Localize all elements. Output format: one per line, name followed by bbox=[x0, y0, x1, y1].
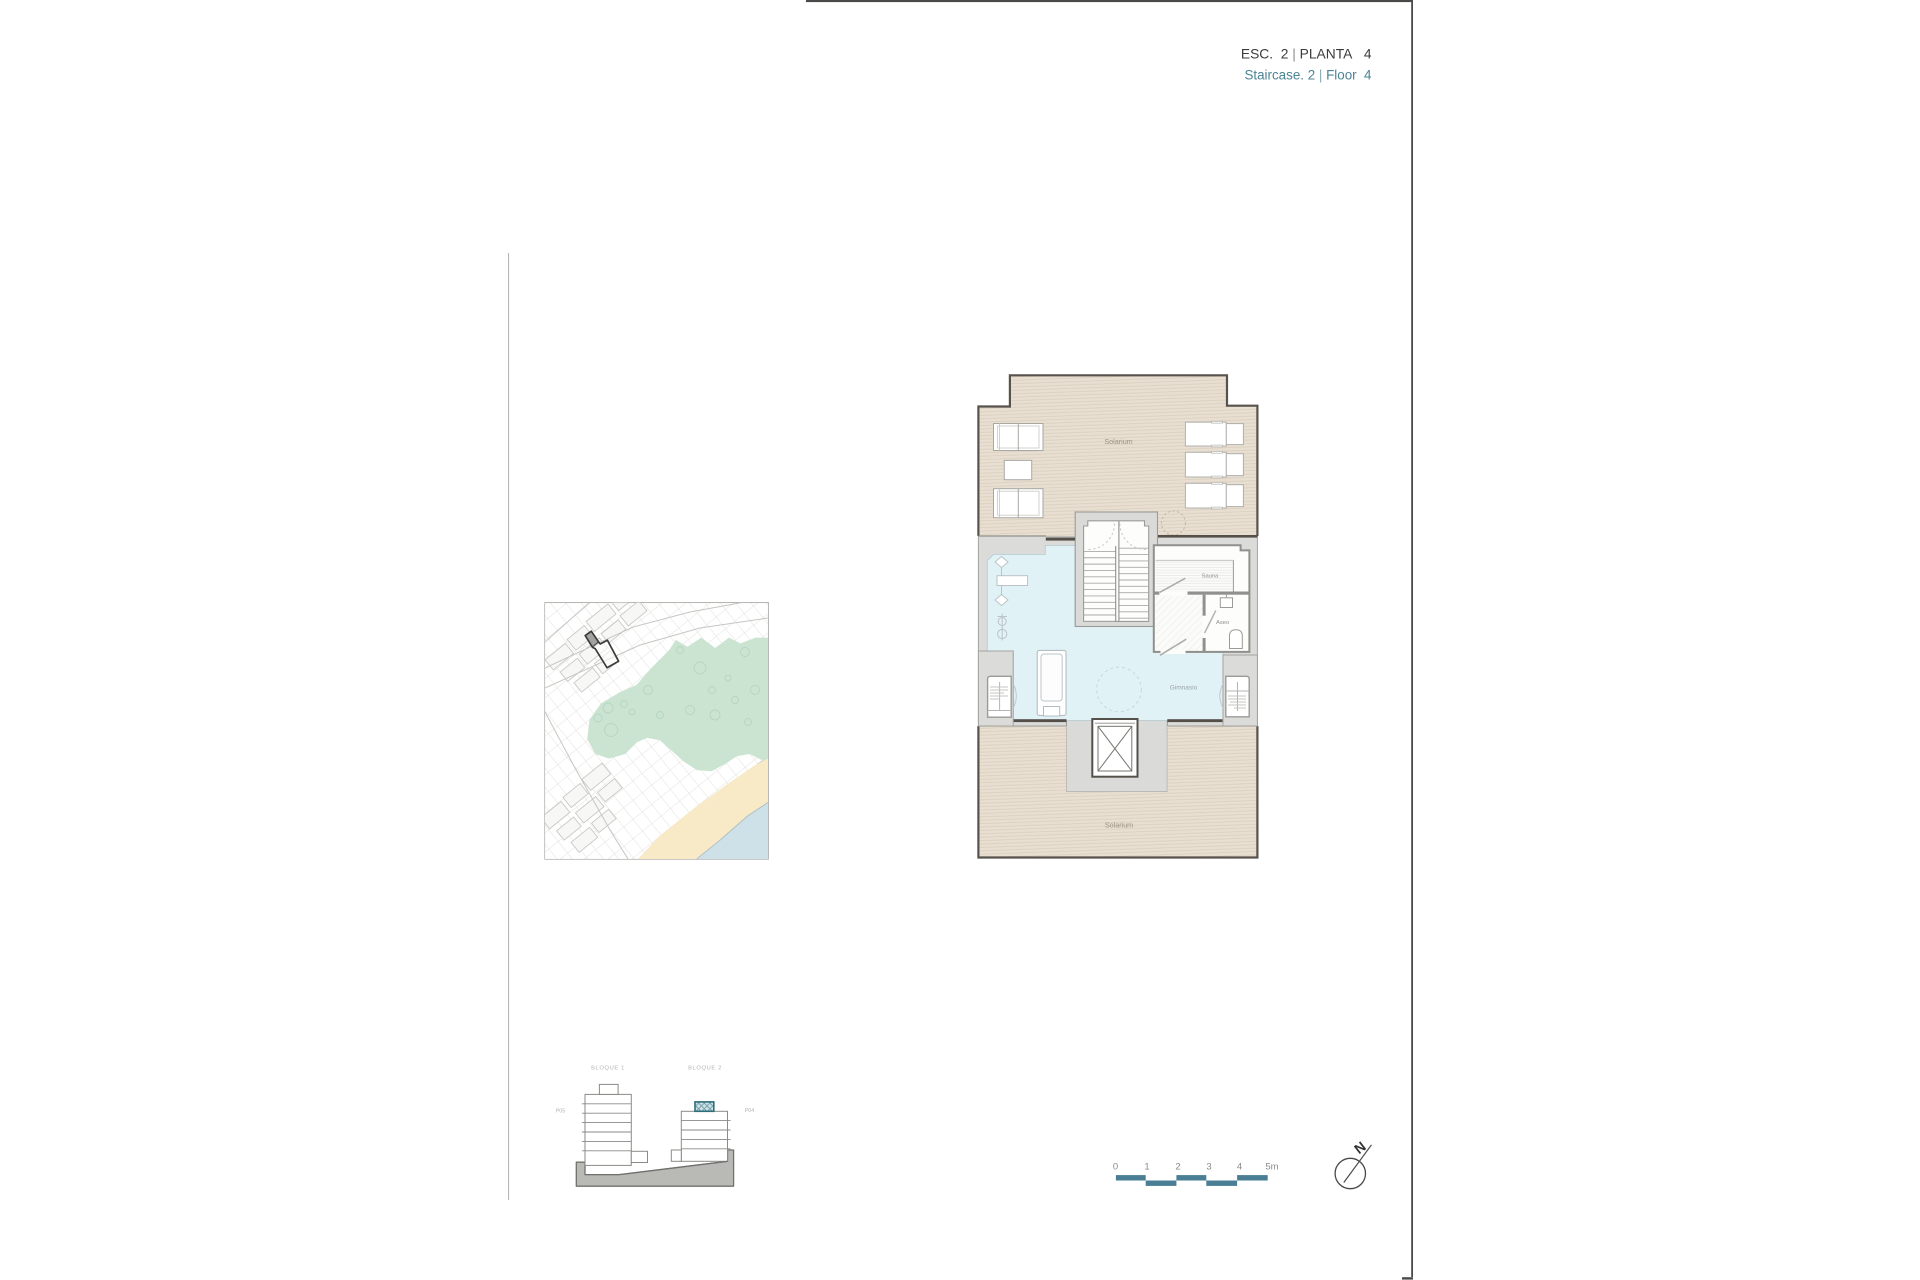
svg-text:Solarium: Solarium bbox=[1105, 821, 1133, 830]
svg-text:1: 1 bbox=[1144, 1162, 1149, 1173]
svg-text:4: 4 bbox=[1237, 1162, 1242, 1173]
svg-text:5m: 5m bbox=[1265, 1162, 1278, 1173]
svg-text:2: 2 bbox=[1175, 1162, 1180, 1173]
svg-text:Staircase. 2 | Floor 4: Staircase. 2 | Floor 4 bbox=[1244, 68, 1372, 83]
svg-text:0: 0 bbox=[1113, 1162, 1118, 1173]
svg-text:P04: P04 bbox=[745, 1108, 755, 1114]
svg-text:P05: P05 bbox=[556, 1109, 566, 1115]
svg-text:Solarium: Solarium bbox=[1104, 437, 1132, 446]
svg-text:Aseo: Aseo bbox=[1216, 620, 1229, 626]
svg-text:N: N bbox=[1351, 1138, 1369, 1157]
svg-text:BLOQUE 1: BLOQUE 1 bbox=[591, 1066, 625, 1072]
svg-text:3: 3 bbox=[1206, 1162, 1211, 1173]
svg-text:BLOQUE 2: BLOQUE 2 bbox=[688, 1066, 722, 1072]
svg-text:Gimnasio: Gimnasio bbox=[1170, 685, 1198, 692]
svg-text:ESC. 2 | PLANTA 4: ESC. 2 | PLANTA 4 bbox=[1241, 47, 1372, 62]
svg-text:Sauna: Sauna bbox=[1202, 574, 1220, 580]
